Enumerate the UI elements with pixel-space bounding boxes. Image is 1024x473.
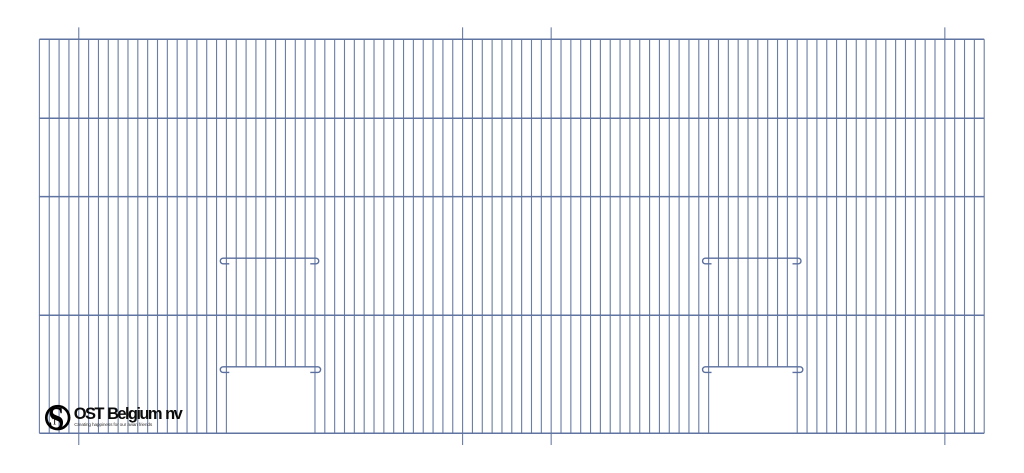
svg-text:T: T xyxy=(52,418,58,428)
